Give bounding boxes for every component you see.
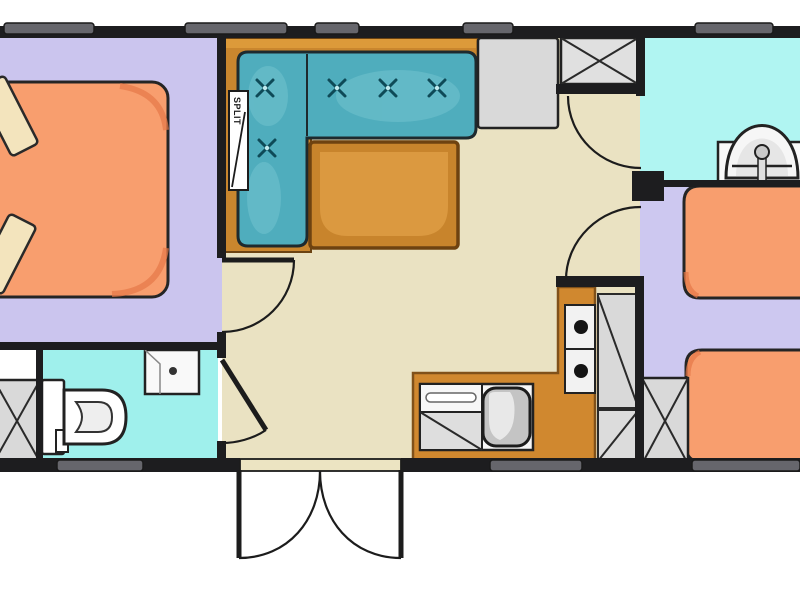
window	[490, 460, 582, 471]
wall-shower-bedroom-divider	[664, 180, 800, 187]
coffee-table	[310, 142, 458, 248]
toilet	[42, 380, 126, 454]
wall-door-stub	[632, 171, 664, 201]
wall-top	[0, 26, 800, 38]
crossed-wardrobe-right	[642, 378, 688, 464]
floor-plan-canvas: SPLIT	[0, 0, 800, 600]
table-top	[320, 152, 448, 236]
window	[695, 23, 773, 34]
wall-bath-left	[36, 350, 43, 458]
window	[692, 460, 800, 471]
kitchen-hatched-cabinets	[598, 294, 638, 462]
wall-bed-bath-divider	[0, 342, 226, 350]
window	[4, 23, 94, 34]
window	[315, 23, 359, 34]
split-unit: SPLIT	[229, 91, 248, 190]
window	[463, 23, 513, 34]
drainer-grooves	[426, 393, 476, 402]
faucet-stem	[758, 158, 766, 182]
single-bed-top	[684, 186, 800, 298]
entrance-double-door	[239, 459, 401, 558]
crossed-wardrobe-left	[0, 380, 40, 462]
single-bed-bottom	[686, 350, 800, 462]
wall-stub	[217, 441, 226, 470]
entrance-threshold	[240, 459, 401, 471]
floor-plan: SPLIT	[0, 0, 800, 600]
faucet-knob	[755, 145, 769, 159]
burner	[574, 364, 588, 378]
left-bedroom-furniture	[0, 75, 168, 297]
kitchen-sink-unit	[420, 384, 533, 450]
wall-under-wardrobe	[556, 84, 644, 94]
stove	[565, 305, 595, 393]
wall-kitchen-top	[556, 276, 644, 287]
bathroom-washbasin	[145, 350, 199, 394]
wall-bedroom-divider	[217, 38, 226, 258]
faucet-dot	[169, 367, 177, 375]
sofa-platform-top-edge	[224, 39, 476, 48]
wall-shower-left	[636, 38, 645, 96]
wall-right-bedroom-left	[635, 287, 644, 462]
window	[185, 23, 287, 34]
crossed-wardrobe-top	[561, 38, 638, 84]
burner	[574, 320, 588, 334]
window	[57, 460, 143, 471]
tall-cabinet	[478, 38, 558, 128]
split-label: SPLIT	[232, 97, 242, 125]
